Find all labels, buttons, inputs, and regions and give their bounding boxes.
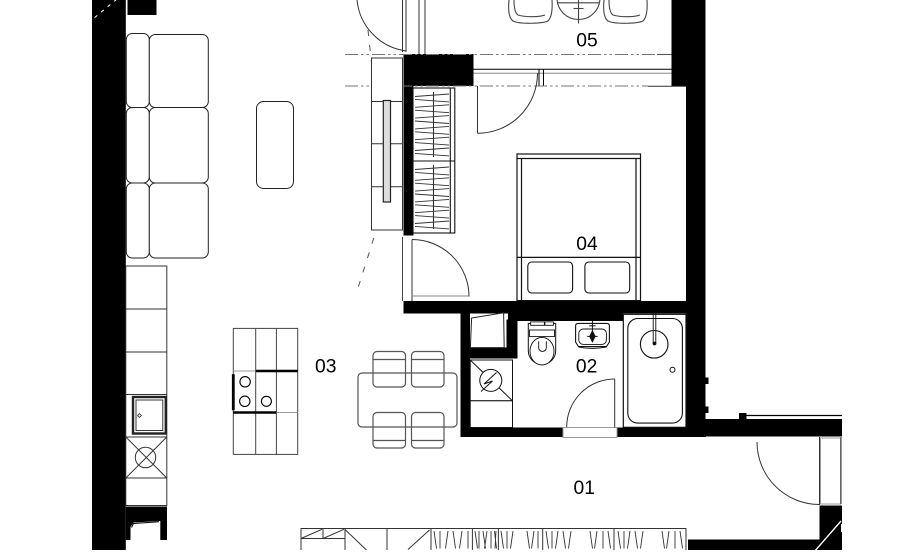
svg-text:02: 02 bbox=[576, 357, 597, 378]
svg-text:05: 05 bbox=[576, 30, 597, 51]
svg-text:04: 04 bbox=[576, 234, 598, 255]
svg-text:03: 03 bbox=[315, 356, 336, 377]
svg-text:01: 01 bbox=[574, 478, 595, 499]
